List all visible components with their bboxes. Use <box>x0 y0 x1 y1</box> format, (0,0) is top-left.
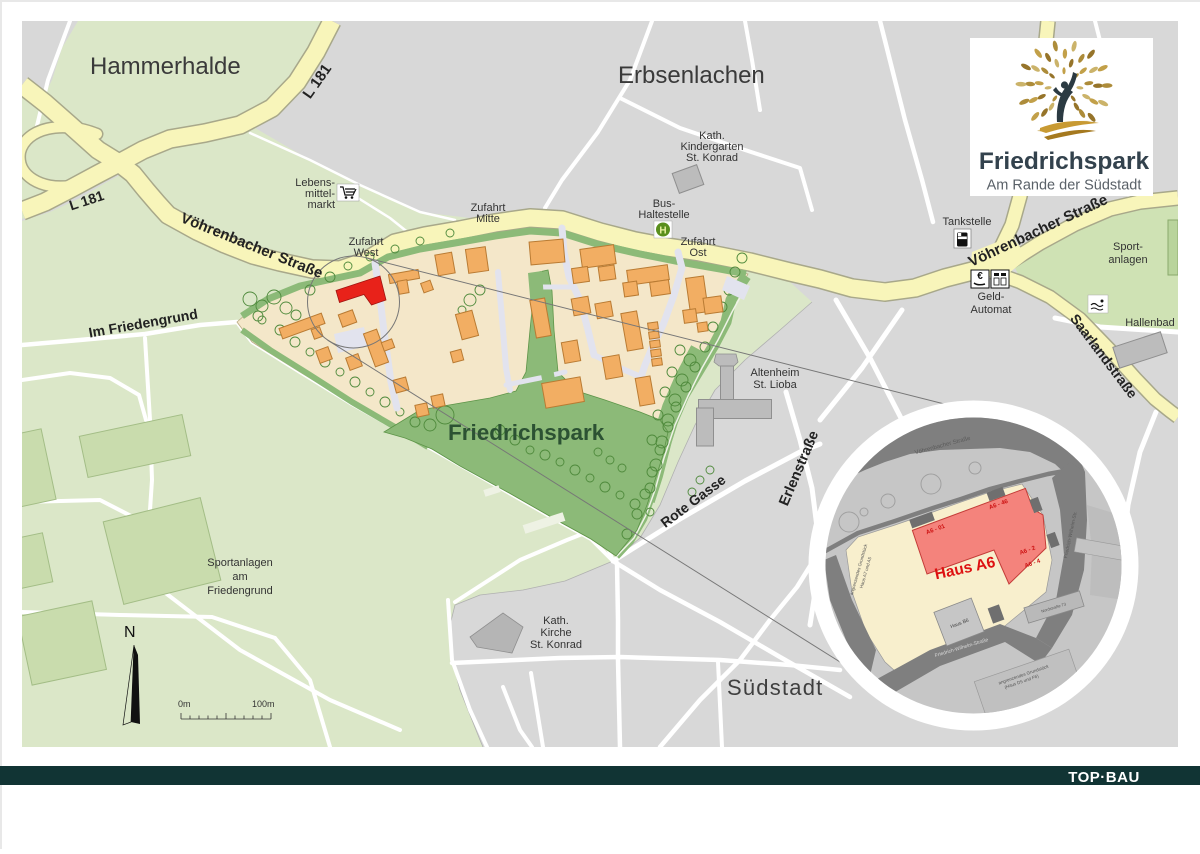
svg-text:Südstadt: Südstadt <box>727 675 823 700</box>
svg-text:Kirche: Kirche <box>540 627 571 639</box>
svg-text:0m: 0m <box>178 699 191 709</box>
svg-text:Kath.: Kath. <box>543 615 569 627</box>
svg-text:St. Lioba: St. Lioba <box>753 379 797 391</box>
svg-text:Friedengrund: Friedengrund <box>207 585 272 597</box>
svg-text:Geld-: Geld- <box>978 291 1005 303</box>
svg-text:Altenheim: Altenheim <box>751 367 800 379</box>
svg-text:Erbsenlachen: Erbsenlachen <box>618 62 765 89</box>
svg-text:markt: markt <box>308 199 336 211</box>
svg-text:Am Rande der Südstadt: Am Rande der Südstadt <box>987 178 1142 194</box>
svg-text:St. Konrad: St. Konrad <box>686 152 738 164</box>
svg-text:Ost: Ost <box>689 247 706 259</box>
svg-text:anlagen: anlagen <box>1108 254 1147 266</box>
svg-text:H: H <box>659 226 666 237</box>
svg-text:N: N <box>124 624 136 641</box>
svg-text:Friedrichspark: Friedrichspark <box>448 420 605 445</box>
svg-text:St. Konrad: St. Konrad <box>530 639 582 651</box>
svg-text:€: € <box>977 271 983 282</box>
svg-text:Friedrichspark: Friedrichspark <box>979 148 1150 175</box>
svg-text:West: West <box>354 247 379 259</box>
svg-text:Hammerhalde: Hammerhalde <box>90 53 241 80</box>
svg-text:Automat: Automat <box>971 304 1012 316</box>
svg-text:Haltestelle: Haltestelle <box>638 209 689 221</box>
svg-text:am: am <box>232 571 247 583</box>
svg-text:100m: 100m <box>252 699 275 709</box>
svg-text:TOP·BAU: TOP·BAU <box>1068 769 1140 786</box>
svg-text:Sport-: Sport- <box>1113 241 1143 253</box>
svg-text:Tankstelle: Tankstelle <box>943 216 992 228</box>
svg-text:Mitte: Mitte <box>476 213 500 225</box>
svg-text:Sportanlagen: Sportanlagen <box>207 557 272 569</box>
svg-text:Hallenbad: Hallenbad <box>1125 317 1175 329</box>
